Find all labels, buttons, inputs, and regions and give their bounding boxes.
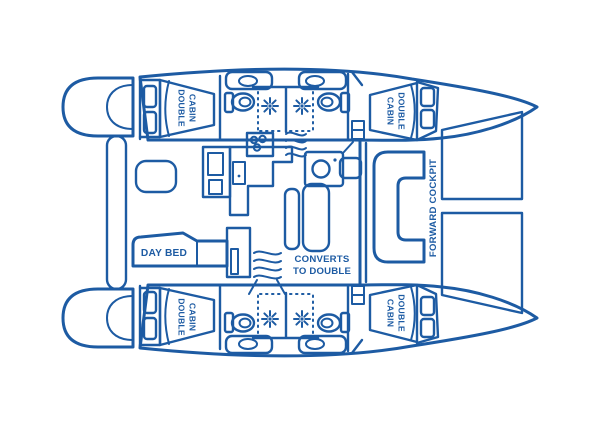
deck-plan-svg: CABIN DOUBLE DOUBLE CABIN CABIN DOUBLE D… xyxy=(0,0,601,425)
label-converts-line2: TO DOUBLE xyxy=(293,266,352,277)
cabin-label-line2: CABIN xyxy=(386,299,396,327)
label-day-bed: DAY BED xyxy=(141,248,187,259)
cockpit-bench xyxy=(374,152,424,262)
cabin-label-line1: DOUBLE xyxy=(397,294,407,332)
aft-cabinet-door xyxy=(231,249,238,274)
locker-door xyxy=(208,153,223,175)
cabin-label-line2: CABIN xyxy=(386,97,396,125)
sink-icon xyxy=(313,161,330,178)
galley-cabinet xyxy=(233,162,245,184)
label-cabin-fore-starboard: DOUBLE CABIN xyxy=(386,294,407,332)
hull-starboard xyxy=(63,285,537,356)
locker-drawer xyxy=(209,180,222,194)
steps-port-icon xyxy=(286,133,306,157)
cabin-label-line1: DOUBLE xyxy=(177,298,187,336)
dinette-table xyxy=(303,184,329,251)
label-cabin-aft-port: CABIN DOUBLE xyxy=(177,89,198,127)
deck-plan-figure: CABIN DOUBLE DOUBLE CABIN CABIN DOUBLE D… xyxy=(0,0,601,425)
sink-unit xyxy=(305,152,343,186)
dinette-bench xyxy=(285,189,299,249)
label-converts-line1: CONVERTS xyxy=(295,254,350,265)
forward-cockpit-text: FORWARD COCKPIT xyxy=(428,159,439,257)
cabin-label-line2: CABIN xyxy=(188,303,198,331)
trampoline-net-icon xyxy=(442,112,522,313)
faucet-icon xyxy=(333,158,336,161)
hull-port xyxy=(63,69,537,140)
cabin-label-line1: DOUBLE xyxy=(397,92,407,130)
label-cabin-fore-port: DOUBLE CABIN xyxy=(386,92,407,130)
cabin-label-line2: CABIN xyxy=(188,94,198,122)
steps-starboard-icon xyxy=(249,252,285,294)
cabin-label-line1: DOUBLE xyxy=(177,89,187,127)
galley xyxy=(203,133,353,215)
saloon-dinette xyxy=(285,158,361,251)
cabinet-knob xyxy=(238,175,241,178)
aft-crossbeam xyxy=(107,136,126,289)
label-forward-cockpit: FORWARD COCKPIT xyxy=(428,159,439,257)
aft-seat xyxy=(136,161,176,192)
label-cabin-aft-starboard: CABIN DOUBLE xyxy=(177,298,198,336)
